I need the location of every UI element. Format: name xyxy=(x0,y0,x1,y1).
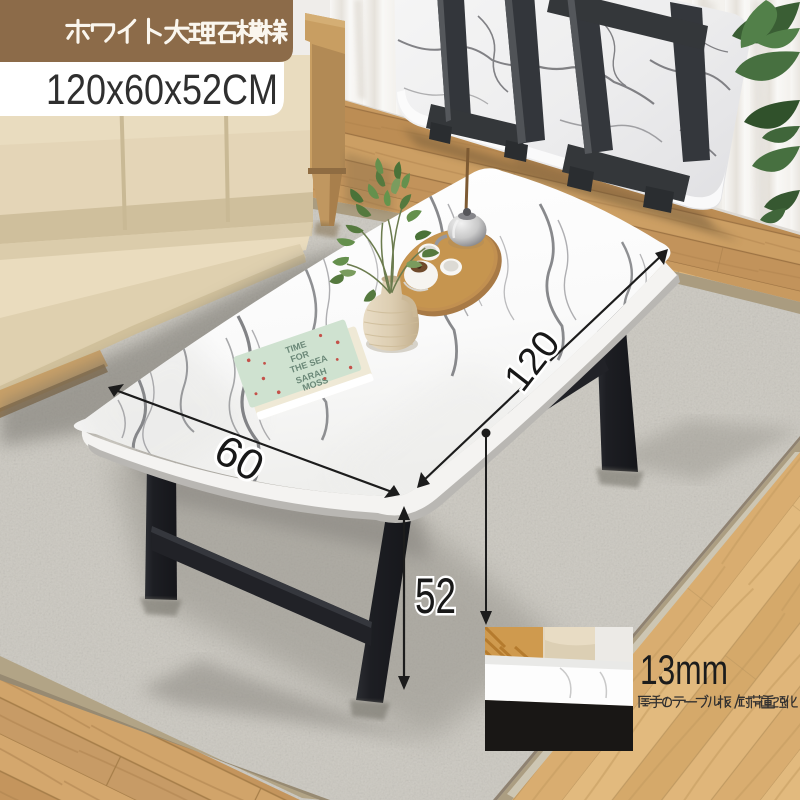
svg-text:120x60x52CM: 120x60x52CM xyxy=(46,66,278,114)
svg-text:13mm: 13mm xyxy=(640,646,728,693)
svg-text:52: 52 xyxy=(415,568,456,624)
